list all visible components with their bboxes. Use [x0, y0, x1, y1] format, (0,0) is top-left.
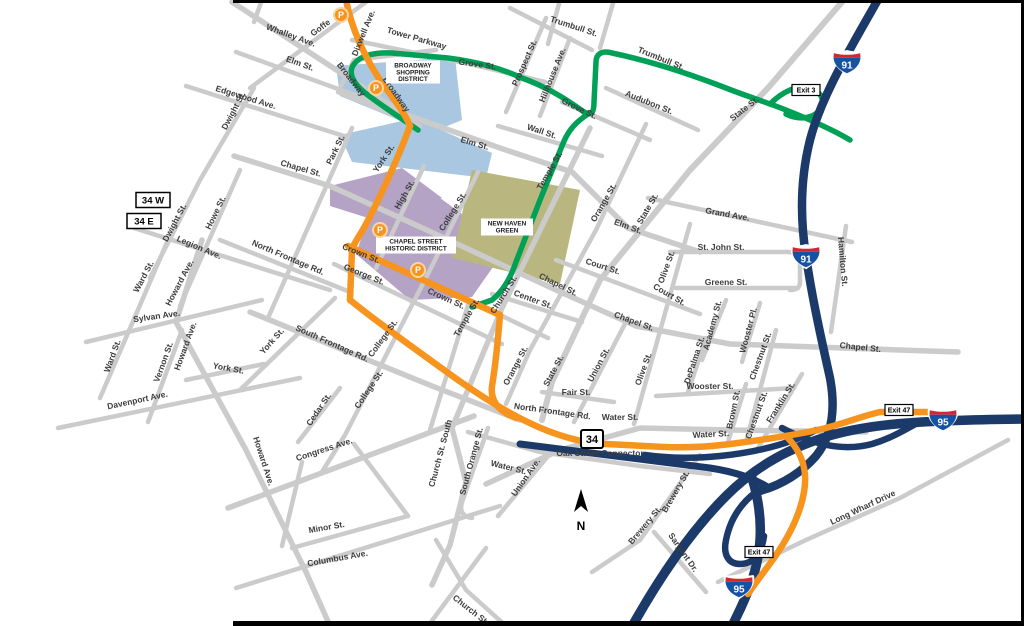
svg-text:Exit 47: Exit 47	[888, 408, 911, 415]
street-label: Congress Ave.	[295, 435, 354, 463]
street-grand-ave	[648, 198, 852, 242]
street-edgewood-ave	[186, 86, 344, 136]
parking-icon: P	[411, 263, 425, 277]
street-label: College St.	[352, 368, 385, 410]
street-label: Oak Street Connector	[556, 448, 644, 458]
route-banner: 34 W	[136, 193, 170, 208]
svg-text:P: P	[415, 265, 421, 275]
street-label: Cedar St.	[304, 391, 333, 428]
svg-text:34 W: 34 W	[142, 196, 164, 207]
new-haven-downtown-street-map: Whalley Ave.GoffeDixwell Ave.Tower Parkw…	[0, 0, 1024, 626]
street-layer	[58, 0, 1008, 626]
street-label: Grove St.	[458, 56, 497, 71]
svg-text:34 E: 34 E	[134, 217, 154, 228]
svg-text:P: P	[338, 10, 344, 20]
svg-text:95: 95	[733, 585, 745, 596]
orange-york-ext	[350, 250, 352, 300]
svg-text:91: 91	[800, 255, 812, 266]
exit-label: Exit 3	[792, 85, 820, 96]
parking-icon: P	[373, 223, 387, 237]
street-label: Water St.	[692, 428, 729, 440]
svg-text:34: 34	[586, 434, 599, 446]
route-34-shield-icon: 34	[581, 430, 603, 448]
map-frame-bottom	[233, 621, 1024, 626]
street-label: Chapel St.	[839, 340, 881, 354]
street-label: Wooster St.	[686, 381, 733, 391]
street-top-stub-c	[600, 0, 614, 48]
svg-text:91: 91	[841, 61, 853, 72]
street-columbus-ave	[236, 506, 500, 588]
parking-icon: P	[334, 8, 348, 22]
district-label: CHAPEL STREETHISTORIC DISTRICT	[376, 237, 456, 254]
svg-text:95: 95	[937, 418, 949, 429]
svg-text:Exit 47: Exit 47	[748, 550, 771, 557]
street-label: Columbus Ave.	[306, 548, 368, 568]
parking-icon: P	[369, 81, 383, 95]
route-banner: 34 E	[127, 214, 161, 229]
svg-text:P: P	[373, 83, 379, 93]
street-label: Grand Ave.	[705, 205, 751, 223]
street-label: Long Wharf Drive	[829, 488, 898, 527]
north-arrow-icon: N	[574, 489, 588, 533]
street-label: Fair St.	[562, 387, 591, 397]
interstate-91-shield-icon: 91	[792, 245, 820, 267]
street-label: State St.	[728, 94, 761, 123]
svg-text:BROADWAYSHOPPINGDISTRICT: BROADWAYSHOPPINGDISTRICT	[394, 63, 432, 84]
street-label: Water St.	[602, 412, 639, 422]
interstate-95-shield-icon: 95	[929, 408, 957, 430]
street-label: Audubon St.	[624, 88, 675, 116]
street-label: South Frontage Rd.	[294, 323, 370, 364]
street-label: St. John St.	[698, 242, 745, 252]
street-label: Whalley Ave.	[265, 22, 317, 49]
street-block-b	[354, 444, 408, 516]
svg-text:P: P	[377, 225, 383, 235]
street-davenport-ave	[58, 378, 300, 428]
svg-text:Exit 3: Exit 3	[797, 88, 816, 95]
map-canvas: Whalley Ave.GoffeDixwell Ave.Tower Parkw…	[0, 0, 1024, 626]
street-label: Trumbull St.	[549, 14, 599, 39]
street-audubon	[606, 88, 698, 130]
svg-text:N: N	[577, 519, 586, 533]
map-frame-top	[233, 0, 1024, 3]
street-label: Greene St.	[705, 277, 748, 287]
street-label: Brewery St.	[659, 469, 691, 515]
exit-label: Exit 47	[745, 547, 773, 558]
district-label: NEW HAVENGREEN	[481, 219, 533, 236]
street-label: Howard Ave.	[251, 435, 276, 486]
district-label: BROADWAYSHOPPINGDISTRICT	[386, 61, 440, 84]
exit-label: Exit 47	[885, 405, 913, 416]
svg-text:CHAPEL STREETHISTORIC DISTRICT: CHAPEL STREETHISTORIC DISTRICT	[385, 239, 447, 253]
street-block-a	[282, 462, 302, 546]
